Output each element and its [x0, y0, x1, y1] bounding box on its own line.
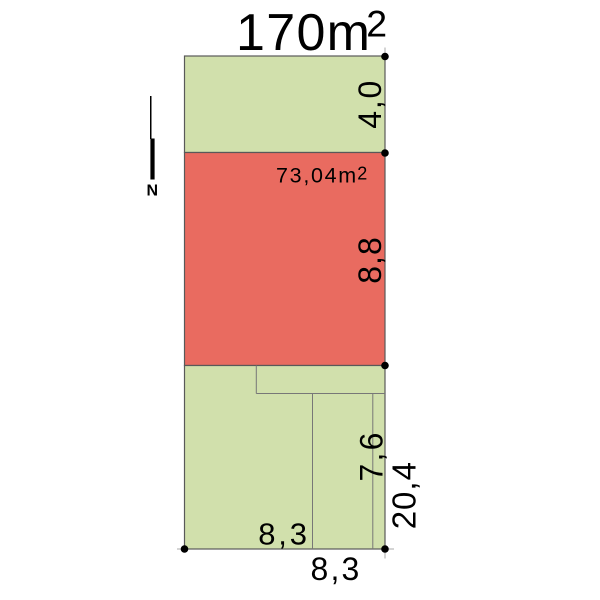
- svg-text:7,6: 7,6: [354, 430, 390, 481]
- svg-text:8,3: 8,3: [310, 551, 361, 587]
- svg-text:2: 2: [366, 3, 387, 45]
- svg-text:170m: 170m: [236, 4, 371, 62]
- svg-text:2: 2: [357, 164, 367, 184]
- svg-text:20,4: 20,4: [386, 461, 423, 529]
- svg-text:4,0: 4,0: [352, 79, 388, 129]
- svg-text:8,3: 8,3: [258, 516, 310, 551]
- svg-text:N: N: [147, 183, 159, 200]
- svg-text:8,8: 8,8: [352, 236, 388, 283]
- svg-text:73,04m: 73,04m: [276, 164, 358, 188]
